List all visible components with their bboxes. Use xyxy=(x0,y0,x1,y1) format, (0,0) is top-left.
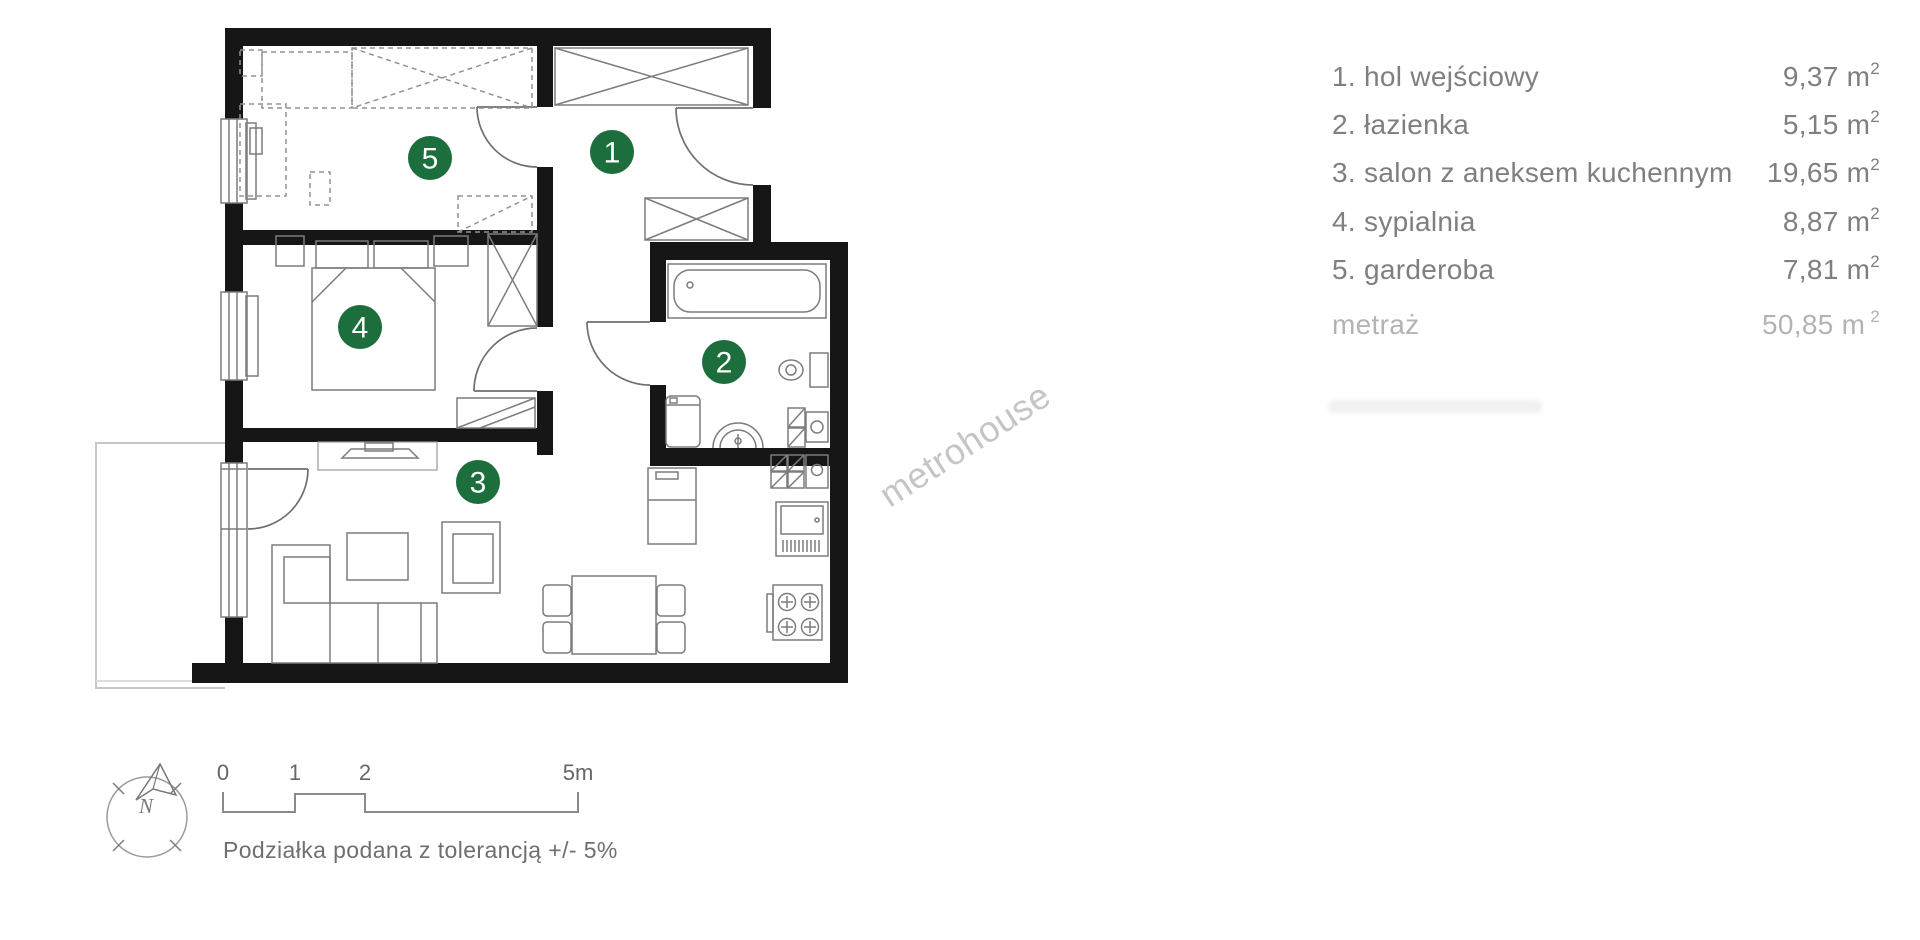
bathtub xyxy=(668,264,826,318)
bathroom-fixtures xyxy=(666,264,828,448)
legend-room-label: 4. sypialnia xyxy=(1332,205,1476,239)
walls xyxy=(192,28,848,683)
room-badge-5-number: 5 xyxy=(422,143,439,176)
scale-bar: 0 1 2 5m Podziałka podana z tolerancją +… xyxy=(217,760,618,863)
room-badge-1: 1 xyxy=(590,130,634,174)
legend-total-area: 50,85m2 xyxy=(1762,308,1880,342)
room-badge-2-number: 2 xyxy=(716,347,733,380)
washbasin xyxy=(713,423,763,448)
scale-tick-1: 1 xyxy=(289,760,301,785)
legend-row: 1. hol wejściowy 9,37m2 xyxy=(1332,60,1880,94)
legend-total-label: metraż xyxy=(1332,308,1419,342)
room-badge-1-number: 1 xyxy=(604,137,621,170)
window-sypialnia xyxy=(221,292,258,380)
radiator xyxy=(457,398,535,428)
floorplan-page: 1 2 3 4 5 N 0 1 2 5m Podziałka podana z … xyxy=(0,0,1920,940)
balcony xyxy=(96,443,225,688)
tv-stand xyxy=(318,442,437,470)
armchair xyxy=(442,522,500,593)
room-badge-2: 2 xyxy=(702,340,746,384)
legend-room-label: 1. hol wejściowy xyxy=(1332,60,1539,94)
compass-north-label: N xyxy=(138,794,154,818)
coffee-table xyxy=(347,533,408,580)
door-garderoba xyxy=(477,107,537,167)
stove xyxy=(767,585,822,640)
kitchen-fixtures xyxy=(648,455,828,640)
door-entrance xyxy=(676,108,753,185)
windows xyxy=(221,119,258,617)
wardrobe-bedroom xyxy=(488,234,537,326)
kitchen-sink-cabinet xyxy=(648,468,696,544)
legend-room-area: 5,15m2 xyxy=(1783,108,1880,142)
door-lazienka xyxy=(587,322,650,385)
legend-row: 4. sypialnia 8,87m2 xyxy=(1332,205,1880,239)
legend-room-label: 2. łazienka xyxy=(1332,108,1469,142)
legend-total-row: metraż 50,85m2 xyxy=(1332,308,1880,342)
scale-tick-5m: 5m xyxy=(563,760,594,785)
pillow-left xyxy=(316,241,368,268)
legend-row: 5. garderoba 7,81m2 xyxy=(1332,253,1880,287)
door-sypialnia xyxy=(474,328,537,391)
legend-row: 3. salon z aneksem kuchennym 19,65m2 xyxy=(1332,156,1880,190)
room-badge-4-number: 4 xyxy=(352,312,369,345)
room-badge-4: 4 xyxy=(338,305,382,349)
window-balcony-door xyxy=(221,463,247,617)
legend-room-label: 5. garderoba xyxy=(1332,253,1494,287)
room-badge-3-number: 3 xyxy=(470,467,487,500)
door-balcony xyxy=(248,469,308,529)
legend-room-area: 7,81m2 xyxy=(1783,253,1880,287)
bedroom-furniture xyxy=(276,234,537,390)
scale-tick-0: 0 xyxy=(217,760,229,785)
scale-tick-2: 2 xyxy=(359,760,371,785)
garderoba-wardrobes xyxy=(240,48,532,232)
legend-room-area: 19,65m2 xyxy=(1767,156,1880,190)
washing-machine xyxy=(666,396,700,447)
legend-room-area: 9,37m2 xyxy=(1783,60,1880,94)
compass-rose: N xyxy=(107,764,187,857)
legend-row: 2. łazienka 5,15m2 xyxy=(1332,108,1880,142)
dining-set xyxy=(543,576,685,654)
toilet xyxy=(779,353,828,387)
bathroom-cabinets xyxy=(788,408,828,447)
sofa xyxy=(272,545,437,663)
room-badge-3: 3 xyxy=(456,460,500,504)
scale-tolerance-note: Podziałka podana z tolerancją +/- 5% xyxy=(223,837,618,863)
pillow-right xyxy=(374,241,428,268)
dining-table xyxy=(572,576,656,654)
fridge xyxy=(776,502,828,556)
legend-smudge xyxy=(1328,400,1542,413)
room-badge-5: 5 xyxy=(408,136,452,180)
legend-room-label: 3. salon z aneksem kuchennym xyxy=(1332,156,1733,190)
legend-room-area: 8,87m2 xyxy=(1783,205,1880,239)
